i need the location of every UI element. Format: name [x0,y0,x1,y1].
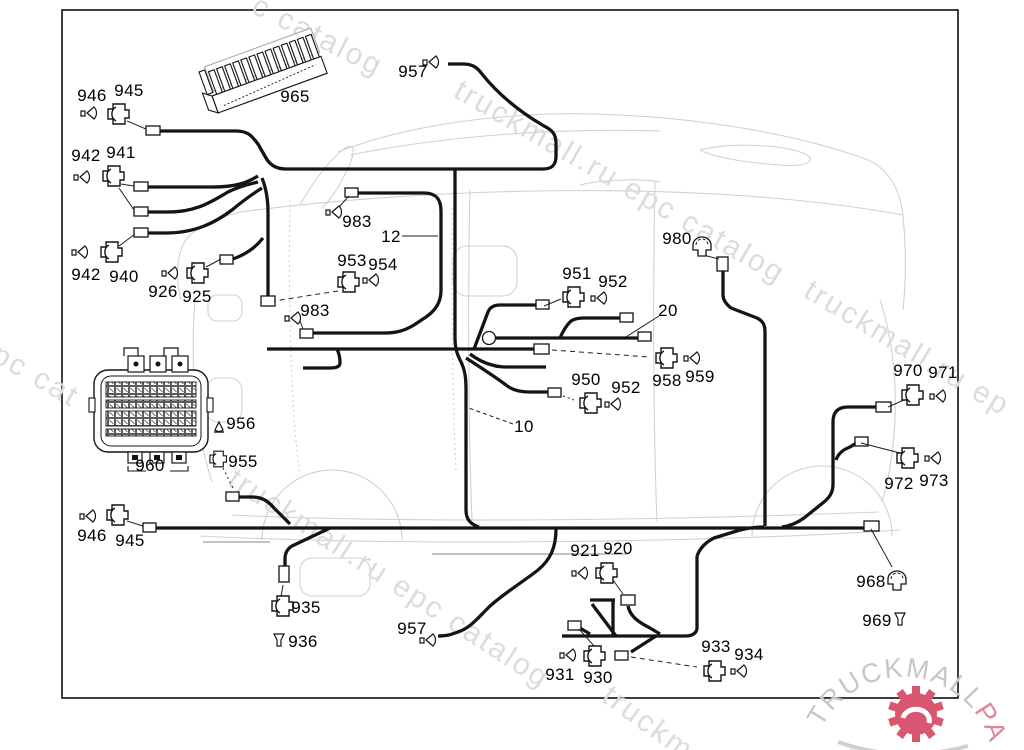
callout-940: 940 [109,267,139,287]
callout-957-b: 957 [397,619,427,639]
pin-plug-icon-971 [930,390,945,402]
grommet-icon-969 [895,613,905,625]
pin-plug-icon-942b [72,246,87,258]
callout-941: 941 [106,143,136,163]
callout-942-a: 942 [71,146,101,166]
callout-973: 973 [919,471,949,491]
connector-housing-icon-925 [187,263,208,283]
callout-971: 971 [928,363,958,383]
connector-housing-icon-930 [584,646,605,666]
callout-945-a: 945 [114,81,144,101]
pin-plug-icon-931 [560,649,575,661]
callout-933: 933 [701,637,731,657]
callout-955: 955 [228,452,258,472]
pin-plug-icon-952b [605,398,620,410]
connector-housing-icon-941 [103,166,124,186]
grommet-icon-956 [214,422,224,432]
callout-934: 934 [734,645,764,665]
ring-terminal-icon [483,332,496,345]
callout-957-a: 957 [398,62,428,82]
pin-plug-icon-921 [572,567,587,579]
callout-954: 954 [368,255,398,275]
callout-952-b: 952 [611,378,641,398]
callout-956: 956 [226,414,256,434]
callout-960: 960 [135,456,165,476]
watermark-text: truckmall.ru epc catalog [449,73,792,290]
connector-housing-icon-935 [272,596,293,616]
connector-housing-icon-933 [704,661,725,681]
watermark-text: truckm [596,679,700,750]
pin-plug-icon-926 [162,267,177,279]
pin-plug-icon-946 [81,107,96,119]
callout-965: 965 [280,87,310,107]
pin-plug-icon-954 [363,274,378,286]
connector-housing-icon-950 [580,393,601,413]
callout-950: 950 [571,370,601,390]
callout-930: 930 [583,668,613,688]
callout-958: 958 [652,371,682,391]
callout-969: 969 [862,611,892,631]
pin-plug-icon-983-top [326,206,341,218]
pin-plug-icon-983-bottom [285,312,300,324]
connector-housing-icon-955 [210,451,227,467]
connector-housing-icon-940 [101,242,122,262]
pin-plug-icon-959 [684,352,699,364]
cover-cap-icon-980 [693,237,711,256]
connector-housing-icon-951 [563,287,584,307]
callout-972: 972 [884,474,914,494]
harness-wires [148,64,878,652]
pin-plug-icon-973 [925,452,940,464]
connector-housing-icon-970 [902,385,923,405]
multi-pin-connector-icon [89,348,213,471]
connector-housing-icon-958 [656,348,677,368]
callout-931: 931 [545,665,575,685]
callout-968: 968 [856,572,886,592]
callout-946-b: 946 [77,526,107,546]
connector-housing-icon-972 [897,448,918,468]
grommet-icon-936 [274,634,284,646]
callout-983-b: 983 [300,301,330,321]
pin-plug-icon-934 [731,665,746,677]
callout-935: 935 [291,598,321,618]
callout-921: 921 [570,541,600,561]
callout-946-a: 946 [77,86,107,106]
connector-housing-icon-953 [338,272,359,292]
watermark-text: ll epc cat [0,313,85,413]
callout-942-b: 942 [71,265,101,285]
connector-housing-icon-920 [596,563,617,583]
callout-952-a: 952 [598,272,628,292]
cover-cap-icon-968 [888,571,906,590]
callout-951: 951 [562,264,592,284]
callout-959: 959 [685,367,715,387]
callout-926: 926 [148,282,178,302]
callout-10: 10 [514,417,534,437]
callout-945-b: 945 [115,531,145,551]
connector-housing-icon-945b [107,505,128,525]
harness-terminals [134,126,891,660]
callout-970: 970 [893,361,923,381]
callout-953: 953 [337,251,367,271]
gear-logo-icon [888,686,944,742]
wiring-diagram-page: c catalog truckmall.ru epc catalog truck… [0,0,1024,750]
callout-936: 936 [288,632,318,652]
callout-983-a: 983 [342,212,372,232]
callout-lines [119,121,904,667]
pin-plug-icon-952a [591,292,606,304]
callout-20: 20 [658,301,678,321]
wiring-diagram-canvas: c catalog truckmall.ru epc catalog truck… [0,0,1024,750]
pin-plug-icon-946b [80,510,95,522]
connector-housing-icon-945 [108,104,129,124]
callout-925: 925 [182,287,212,307]
pin-plug-icon-942 [74,171,89,183]
callout-920: 920 [603,539,633,559]
callout-12: 12 [381,227,401,247]
watermark-text: truckmall.ru epc catalog [222,462,556,695]
callout-980: 980 [662,229,692,249]
